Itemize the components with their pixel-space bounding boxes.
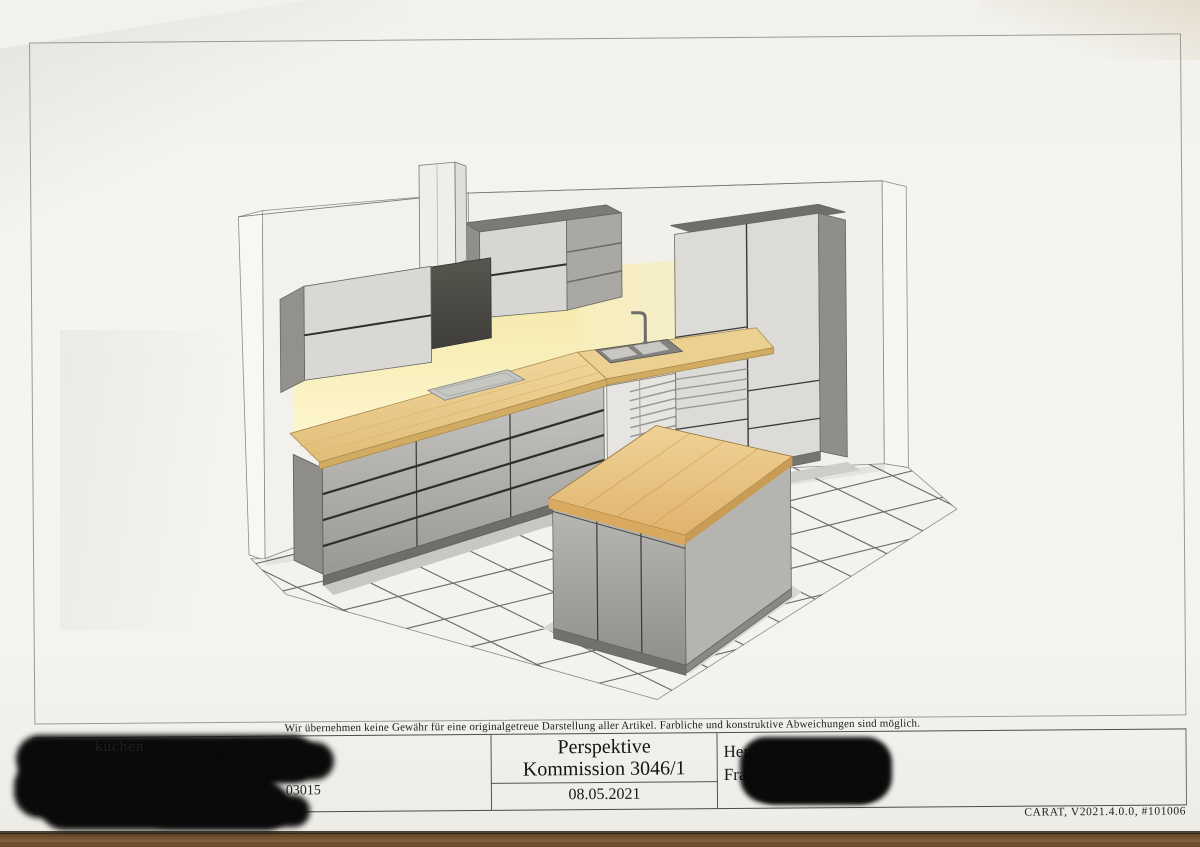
scanned-document-photo: Wir übernehmen keine Gewähr für eine ori…	[0, 0, 1200, 842]
view-name: Perspektive	[490, 735, 717, 759]
redaction-marker	[756, 768, 878, 804]
drawing-date: 08.05.2021	[491, 785, 718, 805]
commission-number: Kommission 3046/1	[491, 757, 718, 781]
printed-sheet-content: Wir übernehmen keine Gewähr für eine ori…	[0, 0, 1200, 847]
faint-redacted-text-fragment: küchen	[95, 739, 144, 756]
desk-surface	[0, 834, 1200, 842]
redaction-marker	[150, 795, 310, 827]
title-block-divider	[491, 781, 718, 784]
extractor-hood-duct	[419, 162, 467, 268]
drawing-title: Perspektive Kommission 3046/1	[490, 735, 717, 781]
extractor-hood	[423, 258, 492, 351]
